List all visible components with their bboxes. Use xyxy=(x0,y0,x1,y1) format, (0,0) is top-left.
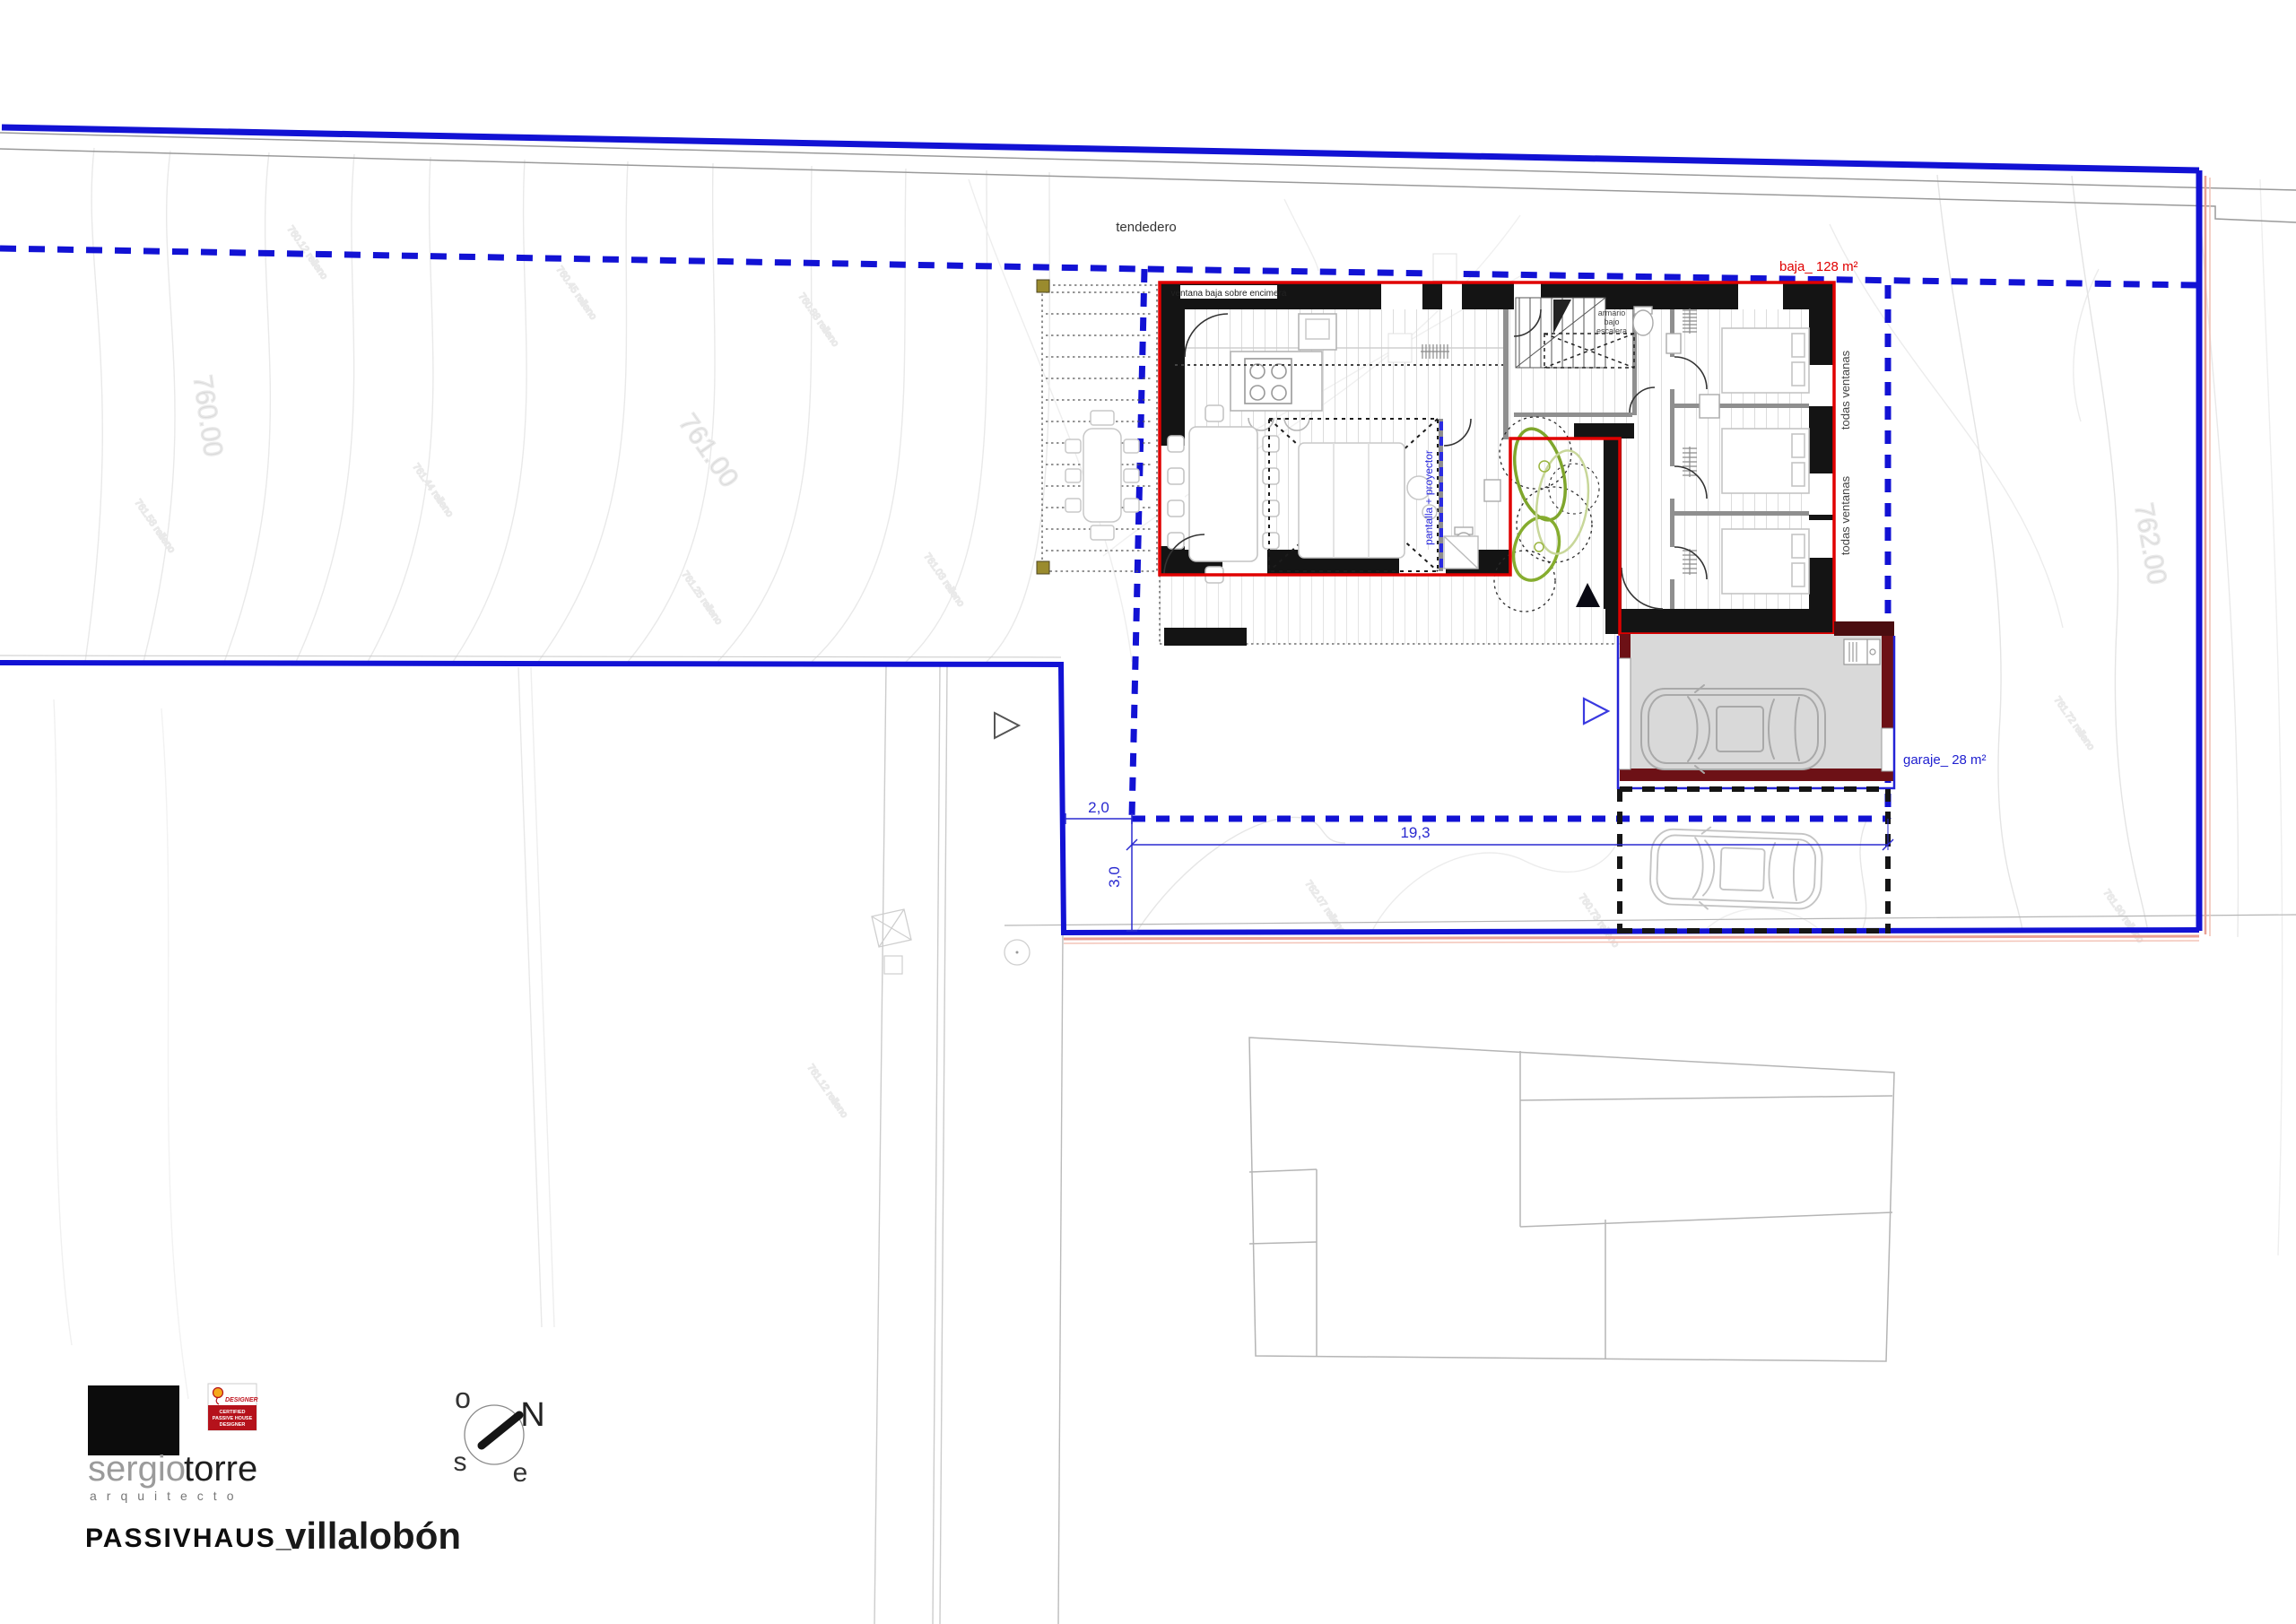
svg-text:762.07 relleno: 762.07 relleno xyxy=(1303,879,1348,936)
ventana-baja-label: ventana baja sobre encimera xyxy=(1171,289,1287,299)
todas-ventanas-label: todas ventanas xyxy=(1839,350,1852,430)
dim-setback-side: 3,0 xyxy=(1106,866,1123,888)
armario-label-2: bajo xyxy=(1604,317,1619,326)
baja-area-label: baja_ 128 m² xyxy=(1779,259,1858,274)
outdoor-table xyxy=(1065,411,1139,540)
title-block: sergio torre arquitecto PASSIVHAUS_ vill… xyxy=(85,1382,545,1557)
badge-cert-3: DESIGNER xyxy=(220,1422,246,1428)
project-type: PASSIVHAUS_ xyxy=(85,1524,293,1553)
badge-cert-2: PASSIVE HOUSE xyxy=(213,1416,253,1421)
compass-s: s xyxy=(454,1447,467,1477)
brand-first: sergio xyxy=(88,1449,186,1489)
svg-text:760.88 relleno: 760.88 relleno xyxy=(796,291,841,349)
neighbor-parcel xyxy=(1249,1038,1894,1361)
brand-second: torre xyxy=(184,1449,257,1489)
armario-label-3: escalera xyxy=(1596,326,1627,335)
dim-setback-front: 2,0 xyxy=(1088,799,1109,816)
compass-needle-icon xyxy=(482,1415,519,1446)
utility-sink-icon xyxy=(1844,639,1880,664)
compass-e: e xyxy=(513,1458,528,1488)
brand-logo-square xyxy=(88,1385,179,1455)
survey-box-icon xyxy=(884,956,902,974)
well-icon xyxy=(1004,940,1030,965)
manhole-icon xyxy=(872,909,911,947)
svg-text:761.25 relleno: 761.25 relleno xyxy=(680,569,725,627)
svg-text:761.72 relleno: 761.72 relleno xyxy=(2052,695,2097,752)
staircase xyxy=(1516,298,1605,368)
access-marker-blue-icon xyxy=(1584,699,1608,724)
compass-rose: N o s e xyxy=(454,1382,545,1488)
tendedero-label: tendedero xyxy=(1116,220,1177,235)
driveway xyxy=(1620,789,1888,934)
svg-text:761.44 relleno: 761.44 relleno xyxy=(411,462,456,519)
dim-plot-width: 19,3 xyxy=(1400,824,1430,841)
car-driveway-icon xyxy=(1649,825,1823,913)
bedroom-furniture xyxy=(1722,328,1809,594)
compass-n: N xyxy=(520,1396,544,1434)
site-plan-sheet: 760.00 761.00 762.00 760.12 relleno 760.… xyxy=(0,0,2296,1624)
svg-text:761.03 relleno: 761.03 relleno xyxy=(922,551,967,609)
contour-label-761: 761.00 xyxy=(673,409,744,493)
garage xyxy=(1618,621,1894,788)
todas-ventanas-label: todas ventanas xyxy=(1839,475,1852,555)
project-name: villalobón xyxy=(285,1515,461,1557)
access-marker-gray-icon xyxy=(995,713,1019,738)
badge-cert-1: CERTIFIED xyxy=(219,1410,245,1415)
compass-o: o xyxy=(455,1382,471,1414)
brand-sub: arquitecto xyxy=(90,1489,243,1503)
armario-label-1: armario xyxy=(1598,308,1626,317)
svg-text:761.12 relleno: 761.12 relleno xyxy=(805,1063,850,1120)
pergola-post-icon xyxy=(1037,561,1049,574)
badge-tulip-icon xyxy=(213,1388,223,1398)
pantalla-label: pantalla + proyector xyxy=(1422,450,1435,545)
contour-label-762: 762.00 xyxy=(2128,500,2171,586)
svg-text:760.45 relleno: 760.45 relleno xyxy=(554,265,599,322)
contour-label-760: 760.00 xyxy=(187,373,228,458)
badge-designer: DESIGNER xyxy=(225,1397,258,1403)
passivhaus-badge: DESIGNER CERTIFIED PASSIVE HOUSE DESIGNE… xyxy=(208,1384,258,1430)
garaje-area-label: garaje_ 28 m² xyxy=(1903,752,1987,768)
pergola-post-icon xyxy=(1037,280,1049,292)
